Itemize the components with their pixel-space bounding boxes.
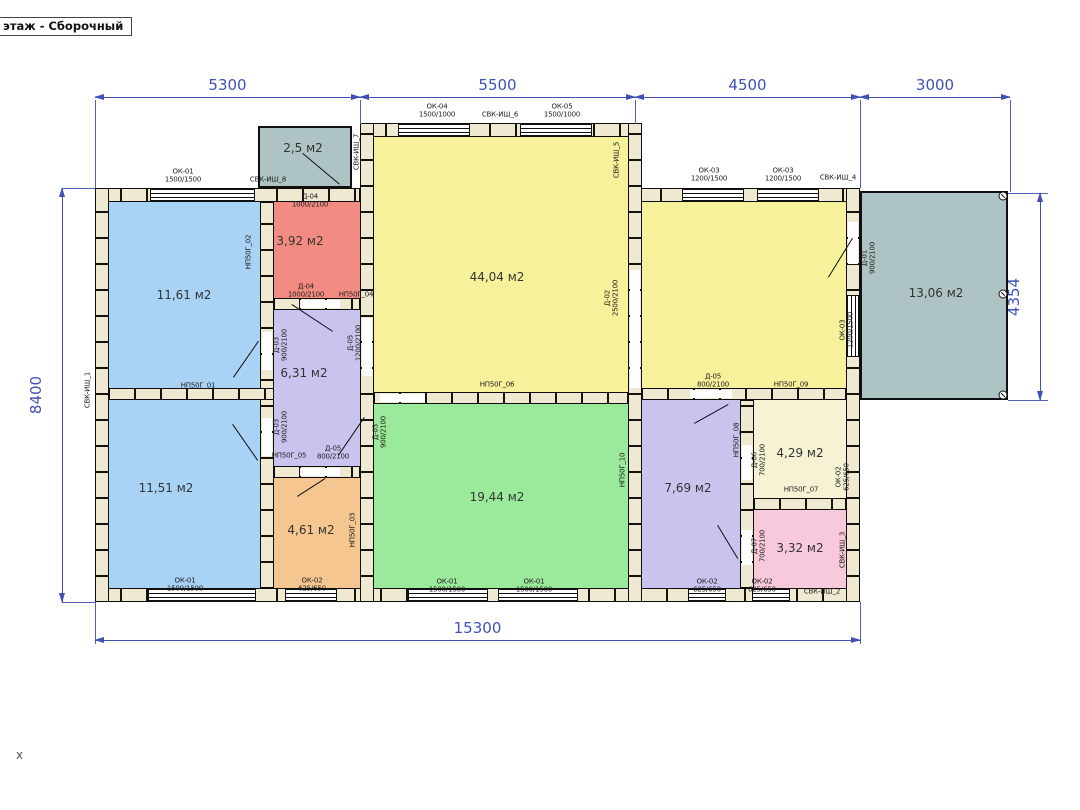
component-tag-label: ОК-02 625/650	[298, 578, 326, 593]
component-tag-label: Д-05 800/2100	[317, 446, 349, 461]
component-tag-label: СВК-ИШ_3	[839, 532, 847, 568]
wall-left[interactable]	[95, 188, 109, 602]
component-tag-label: ОК-03 1200/1500	[691, 168, 727, 183]
component-tag-label: ОК-01 1500/1500	[165, 169, 201, 184]
door-opening	[300, 300, 340, 308]
dimension-arrow-icon	[59, 593, 65, 603]
component-tag-label: ОК-02 625/650	[748, 579, 776, 594]
dimension-value: 4500	[728, 76, 766, 94]
door-opening	[690, 390, 732, 398]
room-area-label: 4,61 м2	[287, 523, 334, 537]
component-tag-label: НП50Г_03	[349, 513, 357, 548]
component-tag-label: ОК-04 1500/1000	[419, 104, 455, 119]
window-icon[interactable]	[682, 189, 744, 201]
dimension-value: 3000	[916, 76, 954, 94]
view-title-tab: этаж - Сборочный	[0, 17, 132, 36]
component-tag-label: НП50Г_10	[619, 453, 627, 488]
component-tag-label: СВК-ИШ_8	[250, 176, 286, 184]
component-tag-label: НП50Г_06	[480, 381, 515, 389]
room-area-label: 7,69 м2	[664, 481, 711, 495]
component-tag-label: НП50Г_05	[272, 452, 307, 460]
door-opening	[300, 468, 340, 476]
door-opening	[630, 270, 640, 388]
component-tag-label: НП50Г_07	[784, 486, 819, 494]
component-tag-label: НП50Г_01	[181, 382, 216, 390]
dimension-extension-line	[635, 100, 636, 124]
dimension-extension-line	[860, 100, 861, 188]
component-tag-label: ОК-03 1200/1500	[840, 312, 855, 348]
screw-icon	[999, 192, 1008, 201]
room-area-label: 11,61 м2	[157, 288, 212, 302]
dimension-extension-line	[360, 100, 361, 124]
component-tag-label: СВК-ИШ_2	[804, 588, 840, 596]
dimension-extension-line	[62, 602, 95, 603]
wall-blue-divider[interactable]	[109, 388, 274, 400]
component-tag-label: ОК-03 1200/1500	[765, 168, 801, 183]
component-tag-label: Д-03 900/2100	[373, 416, 388, 448]
dimension-line: 8400	[62, 188, 63, 602]
component-tag-label: Д-01 900/2100	[862, 242, 877, 274]
room-area-label: 19,44 м2	[470, 490, 525, 504]
dimension-arrow-icon	[94, 637, 104, 643]
component-tag-label: СВК-ИШ_1	[84, 372, 92, 408]
door-opening	[262, 332, 272, 370]
window-icon[interactable]	[398, 124, 470, 136]
room-area-label: 44,04 м2	[470, 270, 525, 284]
dimension-line: 4354	[1040, 193, 1041, 400]
component-tag-label: Д-03 900/2100	[274, 411, 289, 443]
component-tag-label: ОК-05 1500/1000	[544, 104, 580, 119]
component-tag-label: ОК-01 1500/1500	[516, 579, 552, 594]
room-44-04[interactable]	[374, 137, 628, 392]
dimension-value: 5500	[478, 76, 516, 94]
dimension-line: 3000	[860, 97, 1010, 98]
component-tag-label: СВК-ИШ_5	[613, 142, 621, 178]
room-area-label: 11,51 м2	[139, 481, 194, 495]
wall-right-mid-h[interactable]	[642, 388, 846, 400]
window-icon[interactable]	[757, 189, 819, 201]
dimension-line: 5300	[95, 97, 360, 98]
window-icon[interactable]	[150, 189, 255, 201]
room-area-label: 6,31 м2	[280, 366, 327, 380]
dimension-arrow-icon	[634, 94, 644, 100]
component-tag-label: Д-04 1000/2100	[292, 194, 328, 209]
door-opening	[362, 318, 372, 376]
room-area-label: 13,06 м2	[909, 286, 964, 300]
dimension-arrow-icon	[859, 94, 869, 100]
component-tag-label: НП50Г_04	[339, 291, 374, 299]
component-tag-label: Д-04 1000/2100	[288, 284, 324, 299]
component-tag-label: Д-06 700/2100	[752, 444, 767, 476]
component-tag-label: ОК-02 625/650	[836, 463, 851, 491]
component-tag-label: СВК-ИШ_4	[820, 174, 856, 182]
wall-cream-pink[interactable]	[754, 498, 846, 510]
dimension-arrow-icon	[59, 187, 65, 197]
dimension-line: 5500	[360, 97, 635, 98]
dimension-arrow-icon	[1001, 94, 1011, 100]
dimension-extension-line	[1010, 100, 1011, 192]
dimension-arrow-icon	[359, 94, 369, 100]
component-tag-label: СВК-ИШ_6	[482, 111, 518, 119]
component-tag-label: Д-02 2500/2100	[605, 280, 620, 316]
component-tag-label: ОК-02 625/650	[693, 579, 721, 594]
room-area-label: 3,32 м2	[776, 541, 823, 555]
dimension-value: 15300	[454, 619, 502, 637]
component-tag-label: Д-03 900/2100	[274, 329, 289, 361]
component-tag-label: Д-07 700/2100	[752, 530, 767, 562]
dimension-arrow-icon	[1037, 192, 1043, 202]
dimension-extension-line	[95, 100, 96, 188]
component-tag-label: ОК-01 1500/1500	[429, 579, 465, 594]
dimension-line: 4500	[635, 97, 860, 98]
dimension-arrow-icon	[1037, 391, 1043, 401]
axis-x-label: x	[16, 748, 23, 762]
cad-canvas[interactable]: этаж - Сборочный 11,61 м211,51 м23,92 м2…	[0, 0, 1080, 810]
room-area-label: 3,92 м2	[276, 234, 323, 248]
component-tag-label: НП50Г_09	[774, 381, 809, 389]
component-tag-label: СВК-ИШ_7	[353, 134, 361, 170]
dimension-line: 15300	[95, 640, 860, 641]
component-tag-label: Д-05 800/2100	[697, 374, 729, 389]
component-tag-label: НП50Г_08	[733, 423, 741, 458]
dimension-value: 4354	[1005, 277, 1023, 315]
window-icon[interactable]	[520, 124, 592, 136]
door-opening	[380, 394, 425, 402]
room-area-label: 4,29 м2	[776, 446, 823, 460]
component-tag-label: ОК-01 1500/1500	[167, 578, 203, 593]
dimension-arrow-icon	[851, 637, 861, 643]
dimension-value: 8400	[27, 376, 45, 414]
component-tag-label: НП50Г_02	[245, 235, 253, 270]
wall-top-right[interactable]	[635, 188, 860, 202]
screw-icon	[999, 391, 1008, 400]
component-tag-label: Д-05 1200/2100	[348, 325, 363, 361]
dimension-extension-line	[62, 188, 95, 189]
room-area-label: 2,5 м2	[283, 141, 323, 155]
room-right-hall[interactable]	[642, 202, 846, 388]
dimension-arrow-icon	[94, 94, 104, 100]
dimension-value: 5300	[208, 76, 246, 94]
door-opening	[262, 418, 272, 456]
